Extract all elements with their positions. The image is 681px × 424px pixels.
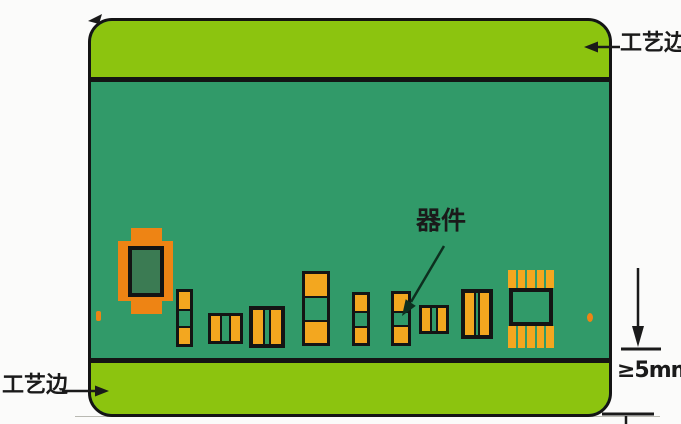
min-edge-width-label: ≥5mm <box>617 358 681 383</box>
process-edge-bottom-label: 工艺边 <box>2 373 68 398</box>
component-pointer-arrow <box>396 242 448 324</box>
process-edge-bottom-strip <box>91 358 609 414</box>
pcb-board <box>88 18 612 417</box>
component-area <box>91 82 609 358</box>
pcb-panel-diagram: 工艺边 工艺边 器件 ≥5mm <box>0 0 681 424</box>
component-label: 器件 <box>416 207 466 236</box>
process-edge-top-strip <box>91 21 609 82</box>
dimension-bottom-tick <box>598 409 658 424</box>
arrow-right-icon <box>62 384 110 398</box>
arrow-left-icon <box>584 40 622 54</box>
process-edge-top-label: 工艺边 <box>620 31 681 56</box>
dimension-arrow-down <box>615 266 665 356</box>
corner-arrow-icon <box>88 13 104 25</box>
